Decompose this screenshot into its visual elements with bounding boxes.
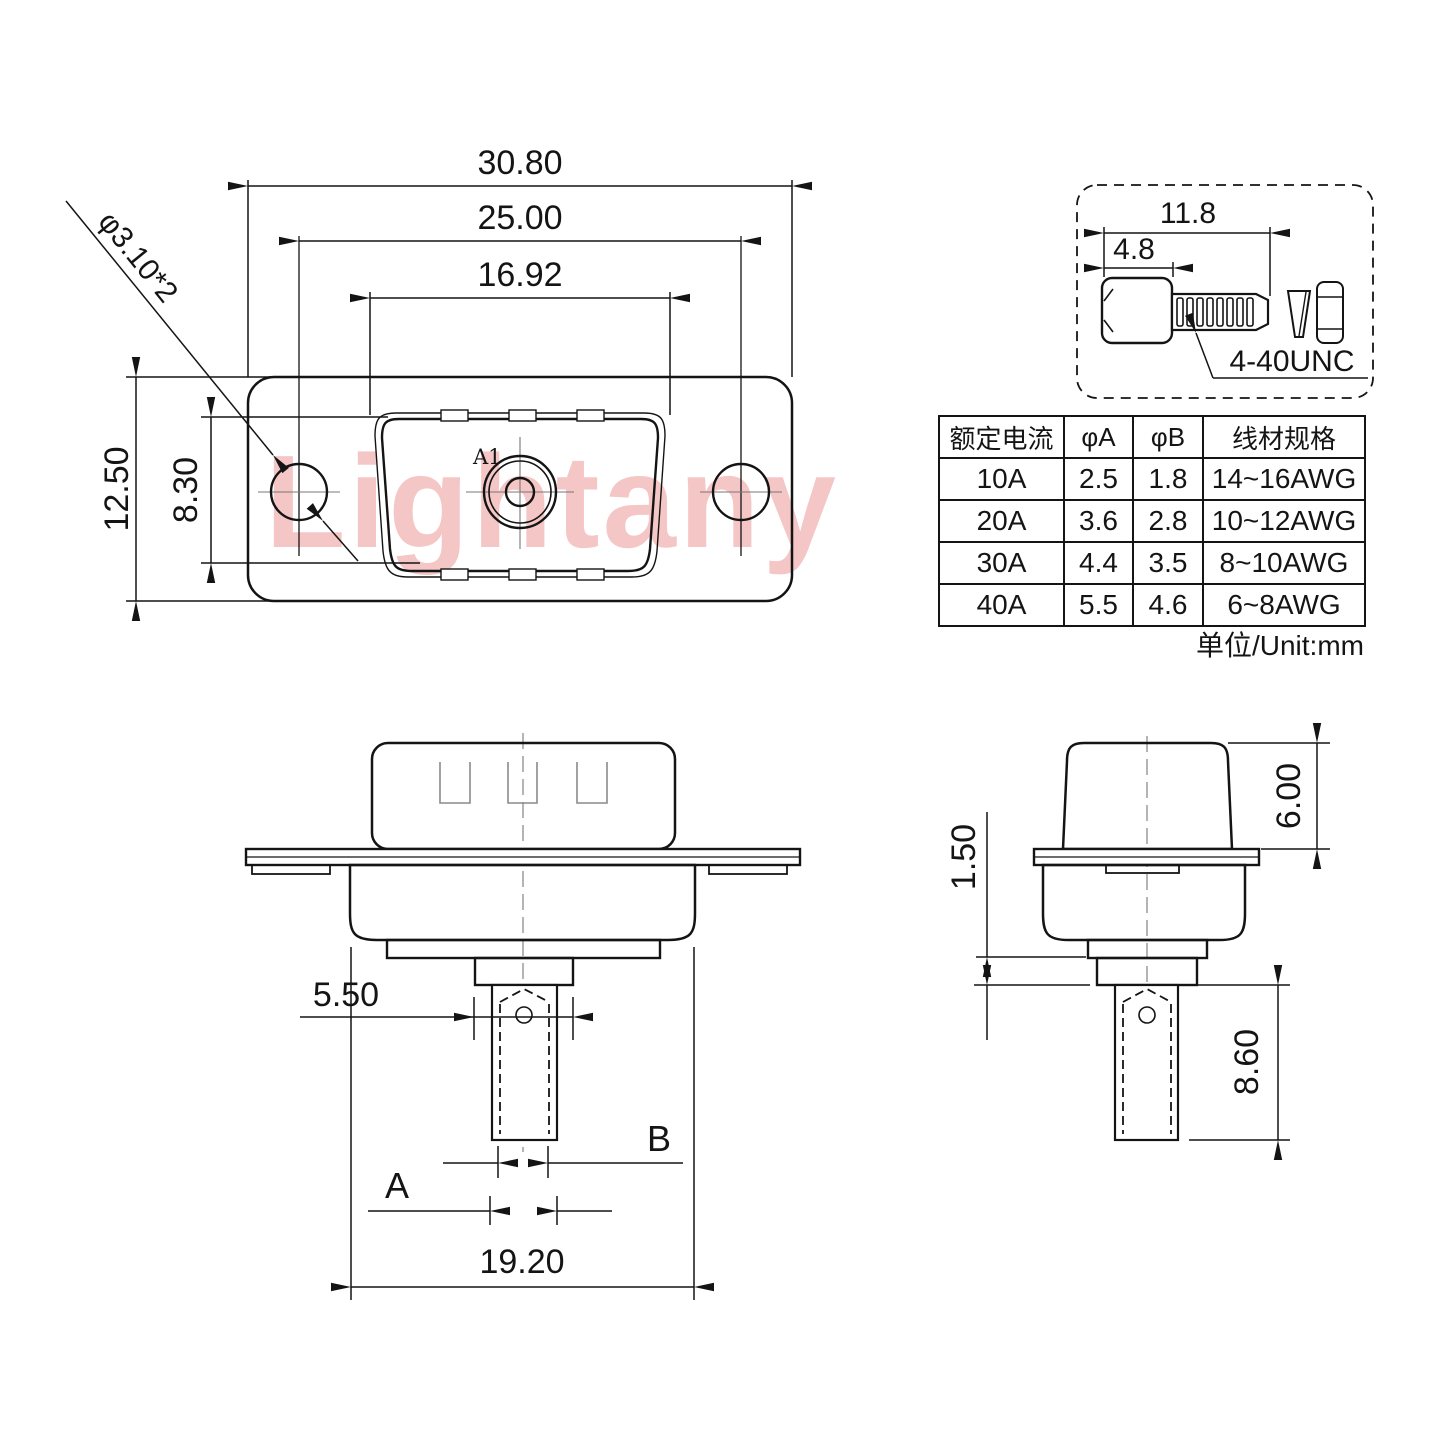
spec-cell: 30A — [939, 542, 1064, 584]
rear-step2 — [475, 958, 573, 985]
rear-flange-tab-right — [709, 865, 787, 874]
side-dim-solder-cup-length: 8.60 — [1228, 1029, 1266, 1095]
spec-cell: 3.6 — [1064, 500, 1133, 542]
front-dim-overall-width: 30.80 — [477, 144, 562, 182]
screw-head — [1102, 278, 1172, 343]
spec-cell: 2.8 — [1133, 500, 1203, 542]
rear-flange-tab-left — [252, 865, 330, 874]
rear-dim-label-b: B — [647, 1118, 671, 1159]
screw-thread-spec-label: 4-40UNC — [1229, 345, 1354, 378]
screw-end-piece — [1317, 282, 1343, 343]
spec-cell: 4.4 — [1064, 542, 1133, 584]
front-contact-label: A1 — [472, 445, 502, 469]
spec-row-10a: 10A 2.5 1.8 14~16AWG — [939, 458, 1365, 500]
spec-cell: 40A — [939, 584, 1064, 626]
spec-cell: 2.5 — [1064, 458, 1133, 500]
rear-dim-step-width: 5.50 — [313, 976, 379, 1014]
spec-cell: 10A — [939, 458, 1064, 500]
front-dim-hole-spacing: 25.00 — [477, 199, 562, 237]
rear-dim-label-a: A — [385, 1165, 409, 1206]
side-solder-cup — [1115, 985, 1178, 1140]
spec-header-wire-gauge: 线材规格 — [1203, 416, 1365, 458]
spec-cell: 3.5 — [1133, 542, 1203, 584]
unit-note: 单位/Unit:mm — [1000, 624, 1364, 664]
spec-row-20a: 20A 3.6 2.8 10~12AWG — [939, 500, 1365, 542]
screw-detail: 11.8 4.8 4-40UNC — [1077, 185, 1373, 398]
screw-dim-total-length: 11.8 — [1160, 197, 1216, 230]
rear-dim-body-width: 19.20 — [479, 1243, 564, 1281]
front-mount-hole-label: φ3.10*2 — [92, 206, 184, 309]
spec-cell: 14~16AWG — [1203, 458, 1365, 500]
side-view: 1.50 6.00 8.60 — [945, 736, 1330, 1140]
screw-slot-piece — [1288, 291, 1310, 337]
screw-dim-head-length: 4.8 — [1113, 233, 1155, 266]
spec-header-dia-b: φB — [1133, 416, 1203, 458]
spec-row-40a: 40A 5.5 4.6 6~8AWG — [939, 584, 1365, 626]
side-body — [1043, 865, 1245, 940]
front-dim-insert-width: 16.92 — [477, 256, 562, 294]
front-dim-insert-height: 8.30 — [167, 457, 205, 523]
spec-cell: 6~8AWG — [1203, 584, 1365, 626]
spec-header-dia-a: φA — [1064, 416, 1133, 458]
spec-cell: 20A — [939, 500, 1064, 542]
side-dim-step-height: 1.50 — [945, 824, 983, 890]
spec-table: 额定电流 φA φB 线材规格 10A 2.5 1.8 14~16AWG 20A… — [938, 415, 1366, 627]
spec-table-header-row: 额定电流 φA φB 线材规格 — [939, 416, 1365, 458]
spec-cell: 4.6 — [1133, 584, 1203, 626]
spec-cell: 10~12AWG — [1203, 500, 1365, 542]
spec-row-30a: 30A 4.4 3.5 8~10AWG — [939, 542, 1365, 584]
rear-view: 5.50 B A 19.20 — [246, 733, 800, 1300]
drawing-canvas: Lightany — [0, 0, 1440, 1440]
front-dim-overall-height: 12.50 — [98, 446, 136, 531]
rear-solder-cup — [492, 985, 557, 1140]
spec-header-rated-current: 额定电流 — [939, 416, 1064, 458]
spec-cell: 5.5 — [1064, 584, 1133, 626]
spec-cell: 8~10AWG — [1203, 542, 1365, 584]
side-dim-shell-height: 6.00 — [1270, 763, 1308, 829]
spec-cell: 1.8 — [1133, 458, 1203, 500]
